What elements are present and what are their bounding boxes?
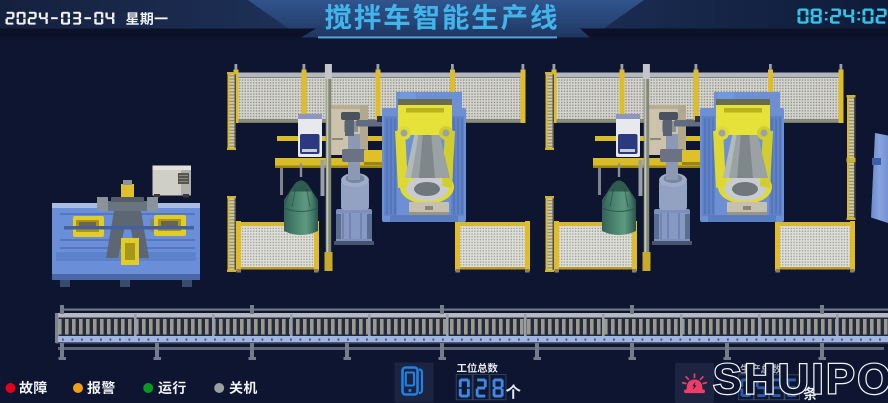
svg-text:SHUIPO: SHUIPO [713, 356, 888, 403]
